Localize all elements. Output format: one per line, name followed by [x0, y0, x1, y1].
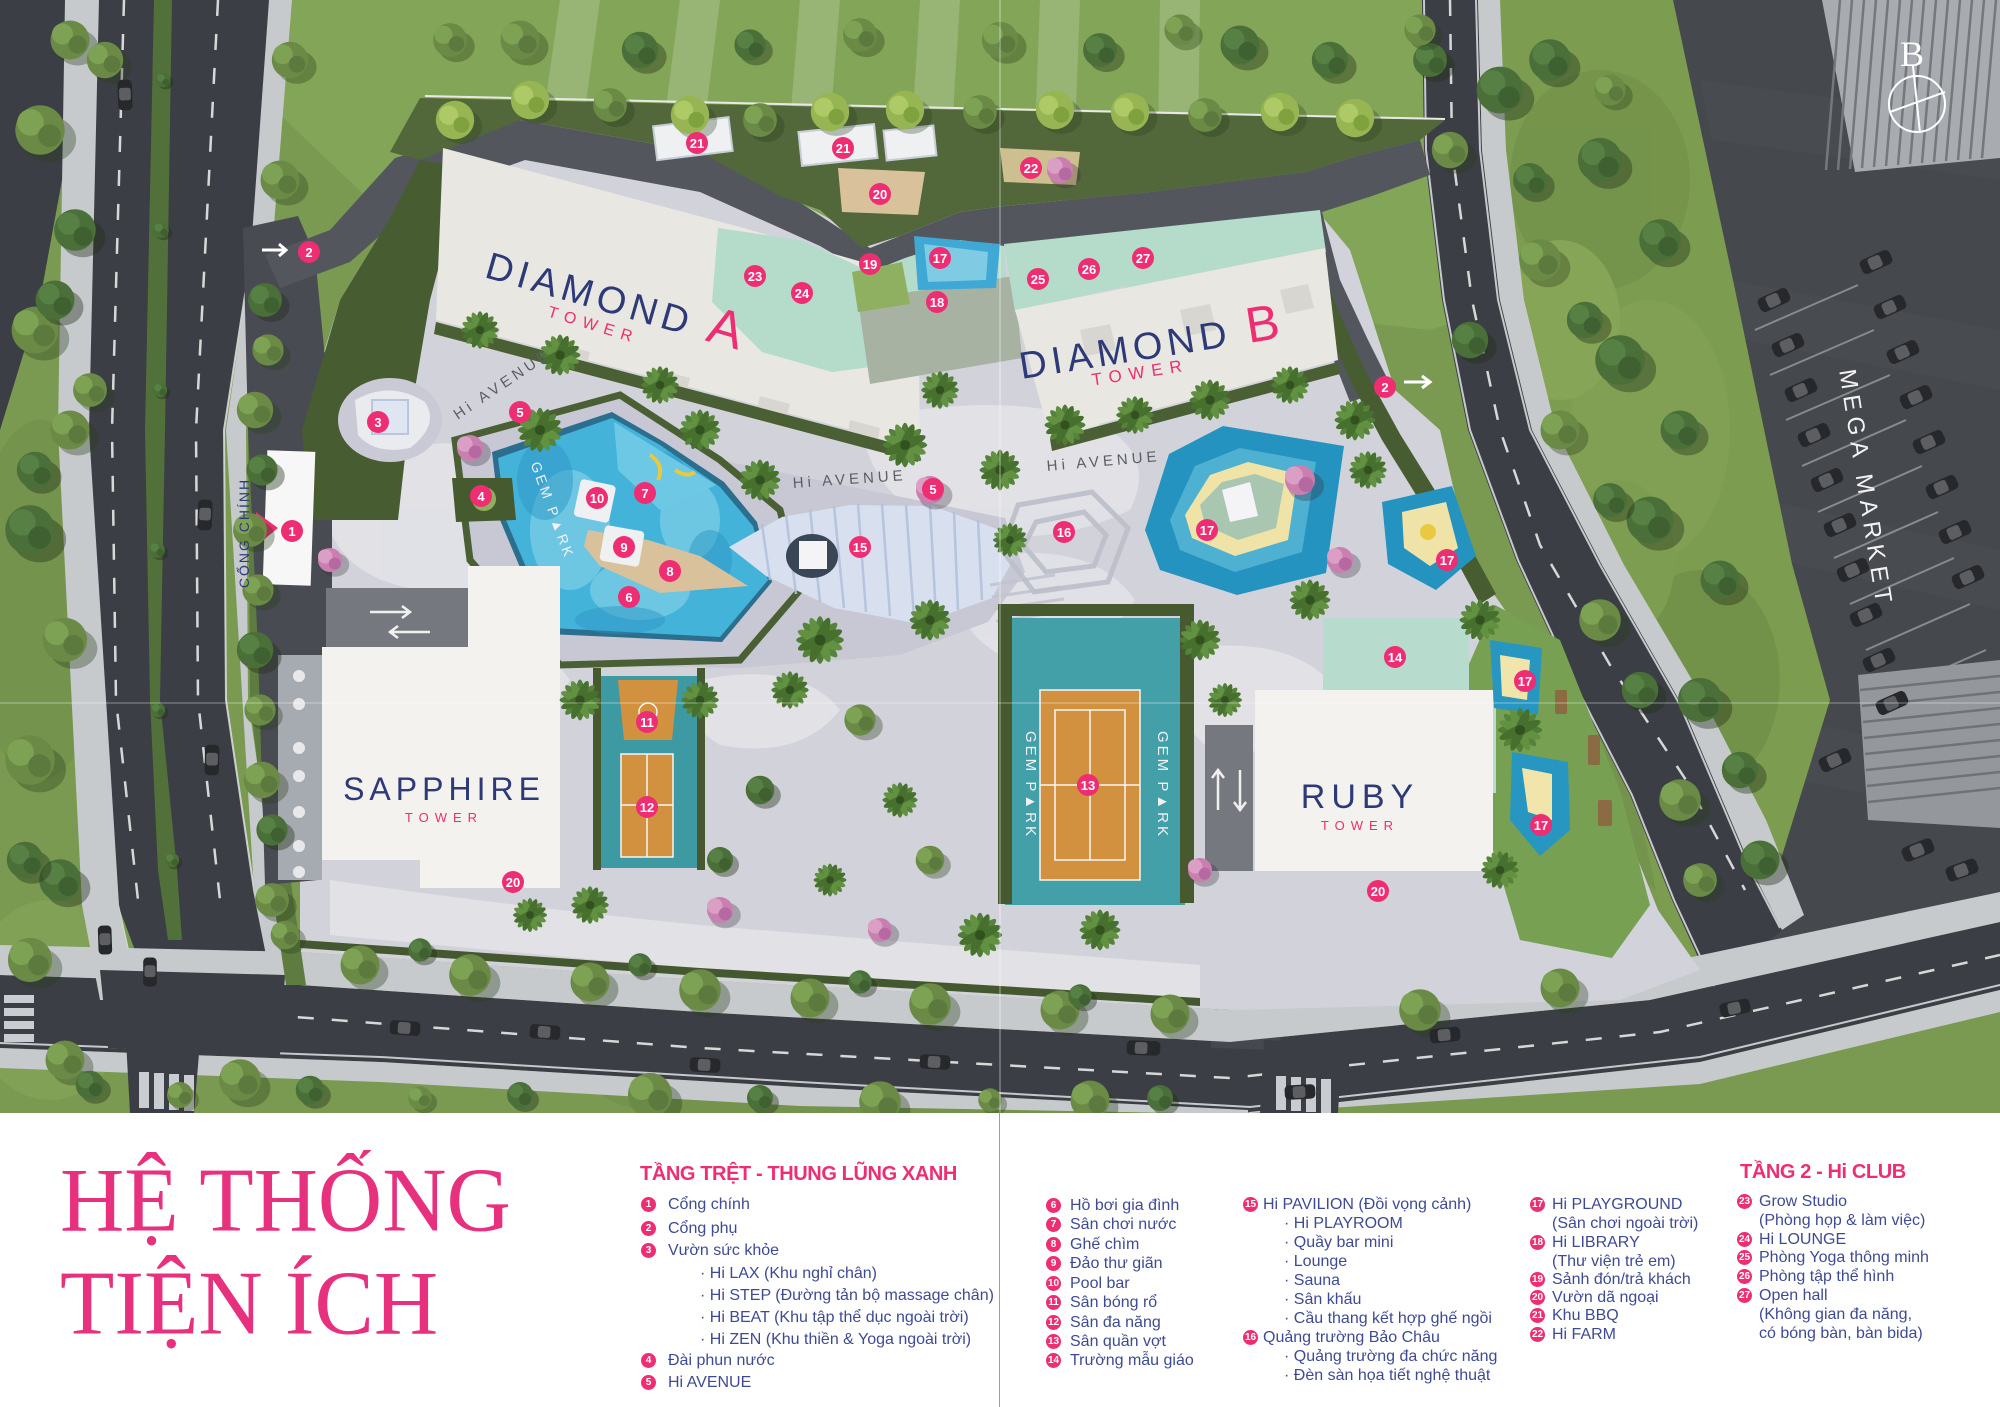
svg-text:17: 17 — [1440, 553, 1454, 568]
svg-text:24: 24 — [795, 286, 810, 301]
svg-text:21: 21 — [836, 141, 850, 156]
svg-text:22: 22 — [1024, 161, 1038, 176]
svg-text:27: 27 — [1136, 251, 1150, 266]
svg-text:8: 8 — [666, 564, 673, 579]
svg-text:GEM P▲RK: GEM P▲RK — [1022, 731, 1039, 839]
svg-text:CỔNG CHÍNH: CỔNG CHÍNH — [235, 478, 252, 588]
svg-text:9: 9 — [620, 540, 627, 555]
svg-text:17: 17 — [1200, 523, 1214, 538]
svg-text:18: 18 — [930, 295, 944, 310]
svg-text:7: 7 — [641, 486, 648, 501]
svg-text:6: 6 — [625, 590, 632, 605]
svg-text:19: 19 — [863, 257, 877, 272]
svg-text:16: 16 — [1057, 525, 1071, 540]
svg-text:1: 1 — [288, 524, 295, 539]
svg-text:23: 23 — [748, 269, 762, 284]
svg-text:TOWER: TOWER — [1321, 818, 1399, 833]
svg-text:13: 13 — [1081, 778, 1095, 793]
svg-text:5: 5 — [516, 405, 523, 420]
svg-text:3: 3 — [374, 415, 381, 430]
svg-text:26: 26 — [1082, 262, 1096, 277]
svg-text:25: 25 — [1031, 272, 1045, 287]
svg-text:20: 20 — [506, 875, 520, 890]
svg-text:5: 5 — [929, 482, 936, 497]
svg-text:20: 20 — [873, 187, 887, 202]
svg-text:15: 15 — [853, 540, 867, 555]
svg-text:11: 11 — [640, 715, 654, 730]
svg-text:B: B — [1900, 34, 1924, 74]
svg-text:2: 2 — [305, 245, 312, 260]
svg-text:TOWER: TOWER — [405, 810, 483, 825]
svg-text:14: 14 — [1388, 650, 1403, 665]
svg-text:21: 21 — [690, 136, 704, 151]
svg-text:10: 10 — [590, 491, 604, 506]
svg-text:17: 17 — [1518, 674, 1532, 689]
svg-text:17: 17 — [1534, 818, 1548, 833]
svg-text:4: 4 — [477, 489, 485, 504]
svg-text:2: 2 — [1381, 380, 1388, 395]
svg-text:20: 20 — [1371, 884, 1385, 899]
svg-text:SAPPHIRE: SAPPHIRE — [343, 771, 545, 807]
svg-text:RUBY: RUBY — [1301, 778, 1419, 816]
svg-text:GEM P▲RK: GEM P▲RK — [1154, 731, 1171, 839]
svg-text:17: 17 — [933, 251, 947, 266]
svg-text:12: 12 — [640, 800, 654, 815]
